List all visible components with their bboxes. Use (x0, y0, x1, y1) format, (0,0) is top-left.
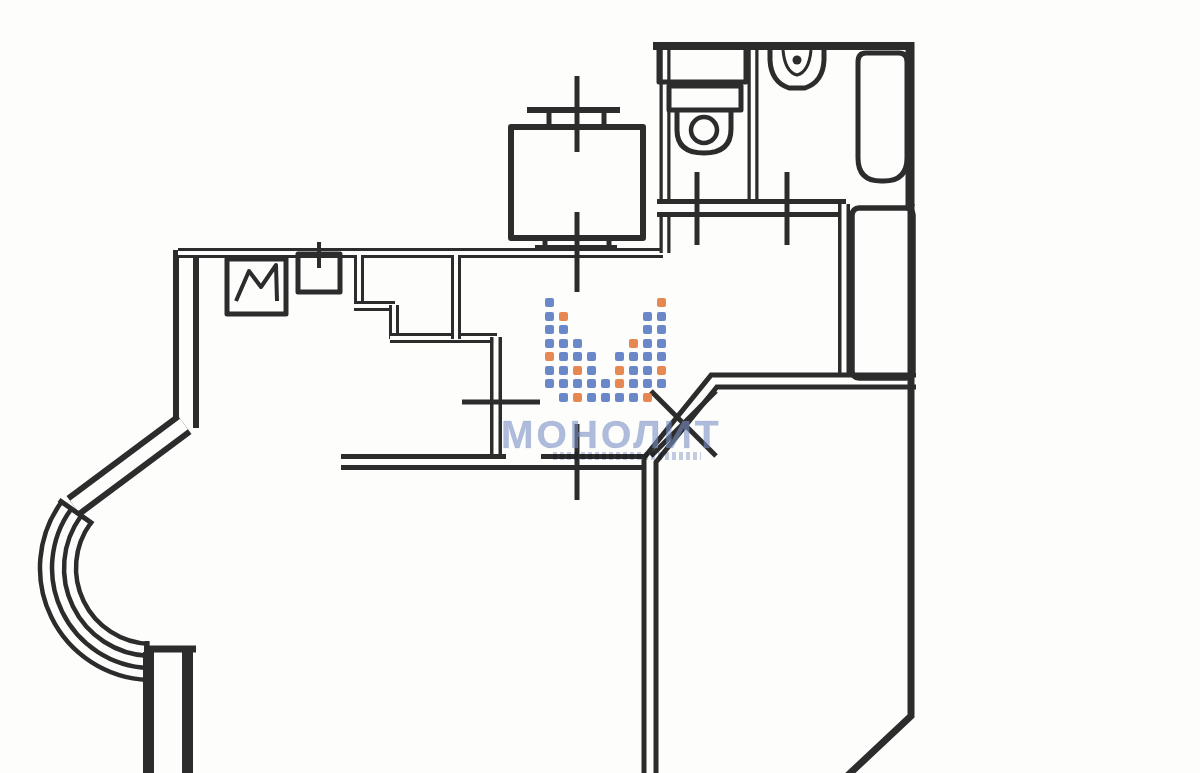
watermark-dot (657, 325, 666, 334)
watermark-dot (657, 366, 666, 375)
watermark-dot (629, 366, 638, 375)
watermark-dot (643, 312, 652, 321)
watermark-dot (545, 339, 554, 348)
duct-box (852, 208, 913, 378)
watermark-dot (643, 352, 652, 361)
watermark-dot (643, 379, 652, 388)
watermark-dot (657, 352, 666, 361)
watermark-dot (657, 312, 666, 321)
watermark-dot (615, 352, 624, 361)
watermark-dot (559, 325, 568, 334)
watermark-dot (643, 366, 652, 375)
right-outer-wall-lower (845, 204, 911, 773)
watermark-dot (559, 312, 568, 321)
watermark-tagline-smudge (553, 452, 701, 460)
watermark-dot (587, 393, 596, 402)
plan-svg (0, 0, 1200, 773)
watermark-dot (545, 352, 554, 361)
stove-zigzag (236, 265, 277, 301)
watermark-dot (573, 393, 582, 402)
watermark-dot (643, 393, 652, 402)
bath-sink-dot (793, 56, 802, 65)
toilet-bowl-circle (691, 117, 717, 143)
watermark-dot (573, 339, 582, 348)
watermark-brand-text: МОНОЛИТ (501, 413, 722, 457)
watermark-dot (559, 352, 568, 361)
watermark-dot (573, 366, 582, 375)
watermark-dot (657, 379, 666, 388)
watermark-dot (629, 393, 638, 402)
watermark-dot (573, 379, 582, 388)
wc-shelf (659, 46, 746, 82)
bathtub (858, 53, 907, 181)
toilet-tank (669, 86, 741, 110)
watermark-dot (559, 366, 568, 375)
watermark-dot (615, 393, 624, 402)
watermark-dot (601, 379, 610, 388)
watermark-dot (545, 298, 554, 307)
watermark-dot (601, 393, 610, 402)
watermark-dot (587, 366, 596, 375)
watermark-dot (629, 352, 638, 361)
watermark-dot (573, 352, 582, 361)
watermark-dot (545, 312, 554, 321)
watermark-dot (587, 352, 596, 361)
floor-plan-scan: МОНОЛИТ (0, 0, 1200, 773)
watermark-dot (559, 379, 568, 388)
bay-pier-wall-core (74, 424, 184, 506)
watermark-dot (545, 366, 554, 375)
watermark-dot (629, 379, 638, 388)
watermark-dot (657, 298, 666, 307)
watermark-dot (615, 379, 624, 388)
watermark-dot (559, 339, 568, 348)
watermark-dot (545, 325, 554, 334)
watermark-dot (643, 339, 652, 348)
watermark-dot (629, 339, 638, 348)
watermark-dot (615, 366, 624, 375)
watermark-dot (587, 379, 596, 388)
watermark-dot (545, 379, 554, 388)
watermark-dot (559, 393, 568, 402)
watermark-dot (657, 339, 666, 348)
watermark-dot (643, 325, 652, 334)
